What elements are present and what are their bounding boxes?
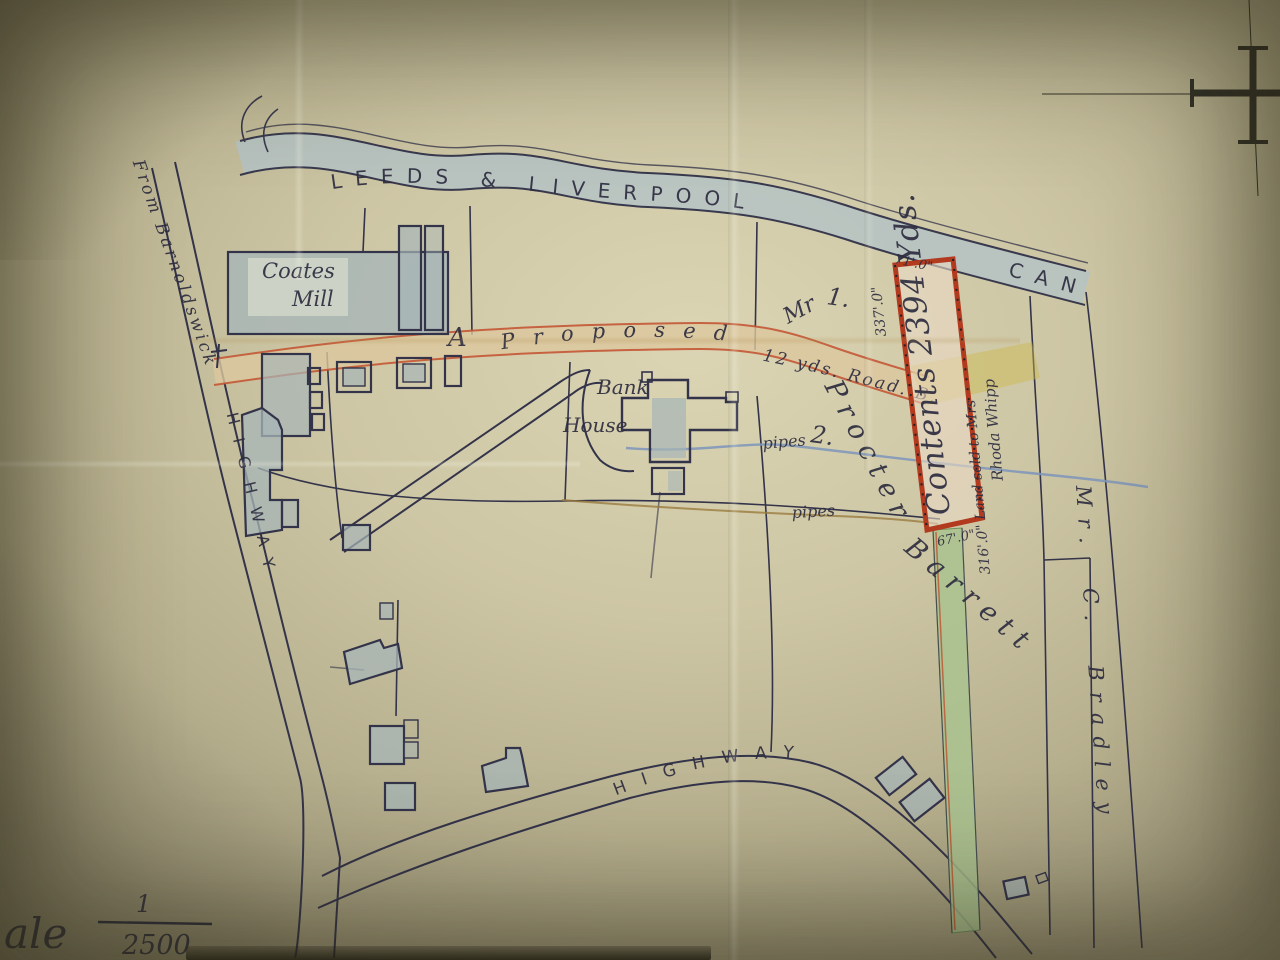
- photographed-plan: LEEDS & LIVERPOOL CANAL: [0, 0, 1280, 960]
- bank-house-chimney-b: [726, 392, 738, 402]
- plan-drawing: LEEDS & LIVERPOOL CANAL: [0, 0, 1280, 960]
- terrace-step-2: [310, 392, 322, 408]
- cottage-3: [370, 726, 404, 764]
- highway-south-label: HIGHWAY: [610, 742, 811, 800]
- shed-southeast-small: [1036, 873, 1048, 884]
- large-house-annex: [282, 500, 298, 527]
- shed-southeast: [1003, 877, 1028, 899]
- cottage-4: [385, 783, 415, 810]
- road-marker-a: A: [446, 323, 467, 353]
- svg-text:HIGHWAY: HIGHWAY: [610, 742, 811, 800]
- svg-text:From Barnoldswick: From Barnoldswick: [128, 156, 221, 370]
- outbuilding-sw: [343, 525, 370, 550]
- terrace-step-3: [312, 414, 324, 430]
- barn-southeast-a: [876, 757, 916, 795]
- parcel-sold-note: 316'.0" Land sold to Mrs Rhoda Whipp: [961, 378, 1015, 575]
- cottage-3-annex-b: [404, 742, 418, 758]
- pipes-label-north: pipes: [762, 430, 807, 453]
- house-plot-c: [445, 356, 461, 386]
- barn-southeast-b: [900, 779, 945, 821]
- mill-annex-b: [425, 226, 443, 330]
- registration-cross-icon: [1042, 0, 1280, 196]
- svg-text:Barrett: Barrett: [898, 531, 1042, 661]
- pipes-label-south: pipes: [791, 501, 835, 522]
- scale-label-partial: ale: [4, 909, 67, 958]
- house-b: [403, 364, 425, 382]
- mill-label-line1: Coates: [262, 259, 335, 283]
- cottage-3-annex-a: [404, 720, 418, 738]
- scale-fraction-denominator: 2500: [121, 930, 191, 960]
- from-barnoldswick-label: From Barnoldswick: [128, 156, 221, 370]
- house-a: [343, 368, 365, 386]
- bank-house-shading: [652, 398, 686, 458]
- scale-note: ale 1 2500: [4, 890, 212, 960]
- parcel-dim-west: 337'.0": [869, 285, 890, 337]
- plot2-number: 2.: [808, 420, 836, 451]
- bank-house-label-line1: Bank: [596, 375, 649, 399]
- plot1-number: 1.: [825, 282, 852, 313]
- bank-house-label-line2: House: [562, 413, 627, 437]
- village-street-a: [330, 370, 590, 540]
- scale-fraction-numerator: 1: [136, 890, 151, 918]
- mill-label-line2: Mill: [291, 287, 334, 311]
- scale-fraction-bar: [98, 922, 212, 924]
- bank-house-outbuilding-shading: [668, 471, 682, 491]
- owner1-last-name: Barrett: [898, 531, 1042, 661]
- cottage-1: [380, 603, 393, 619]
- cottage-2: [344, 640, 402, 684]
- village-street-b: [344, 383, 602, 552]
- plot1-owner-prefix: Mr: [778, 291, 821, 330]
- mill-annex-a: [399, 226, 421, 330]
- cottage-5: [482, 748, 528, 792]
